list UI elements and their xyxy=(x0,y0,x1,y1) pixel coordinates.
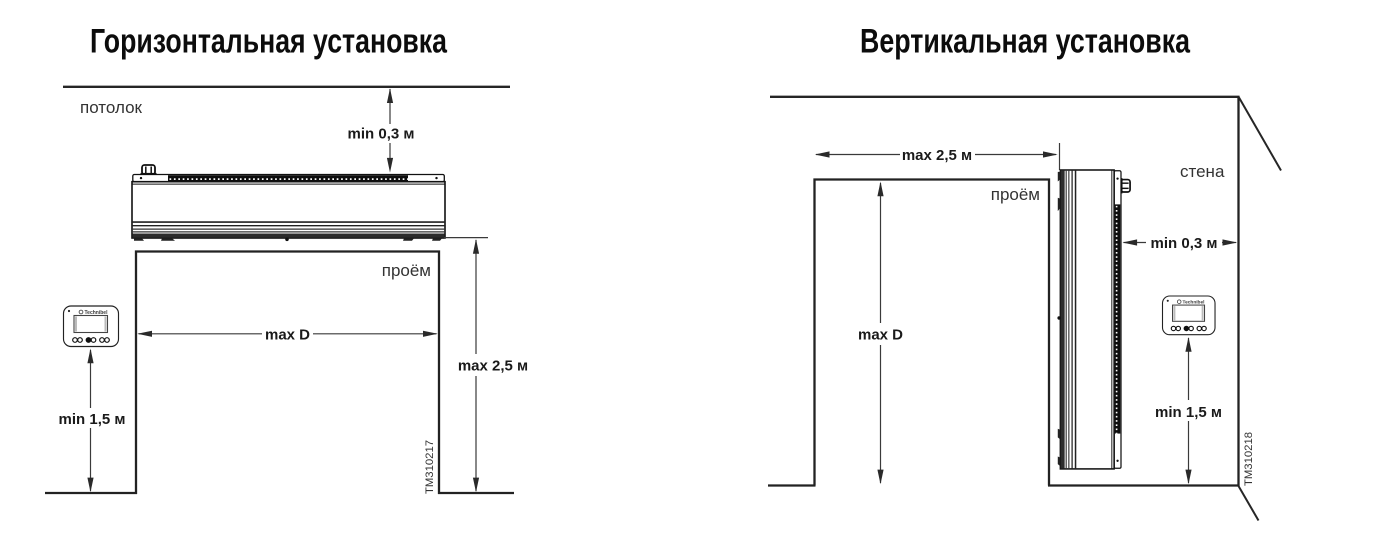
svg-text:проём: проём xyxy=(382,261,431,280)
svg-text:max D: max D xyxy=(265,326,310,343)
svg-text:max D: max D xyxy=(858,326,903,343)
svg-text:min 1,5 м: min 1,5 м xyxy=(1155,404,1222,421)
svg-text:min 0,3 м: min 0,3 м xyxy=(348,126,415,143)
svg-text:min 1,5 м: min 1,5 м xyxy=(59,411,126,428)
svg-text:min 0,3 м: min 0,3 м xyxy=(1151,235,1218,252)
svg-text:TM310218: TM310218 xyxy=(1243,432,1255,486)
svg-text:max 2,5 м: max 2,5 м xyxy=(458,358,528,375)
svg-text:проём: проём xyxy=(991,185,1040,204)
svg-text:стена: стена xyxy=(1180,162,1225,181)
svg-text:TM310217: TM310217 xyxy=(424,440,436,494)
svg-text:потолок: потолок xyxy=(80,98,143,117)
svg-text:Горизонтальная установка: Горизонтальная установка xyxy=(90,23,448,61)
svg-text:Вертикальная установка: Вертикальная установка xyxy=(860,23,1191,61)
svg-text:max 2,5 м: max 2,5 м xyxy=(902,147,972,164)
